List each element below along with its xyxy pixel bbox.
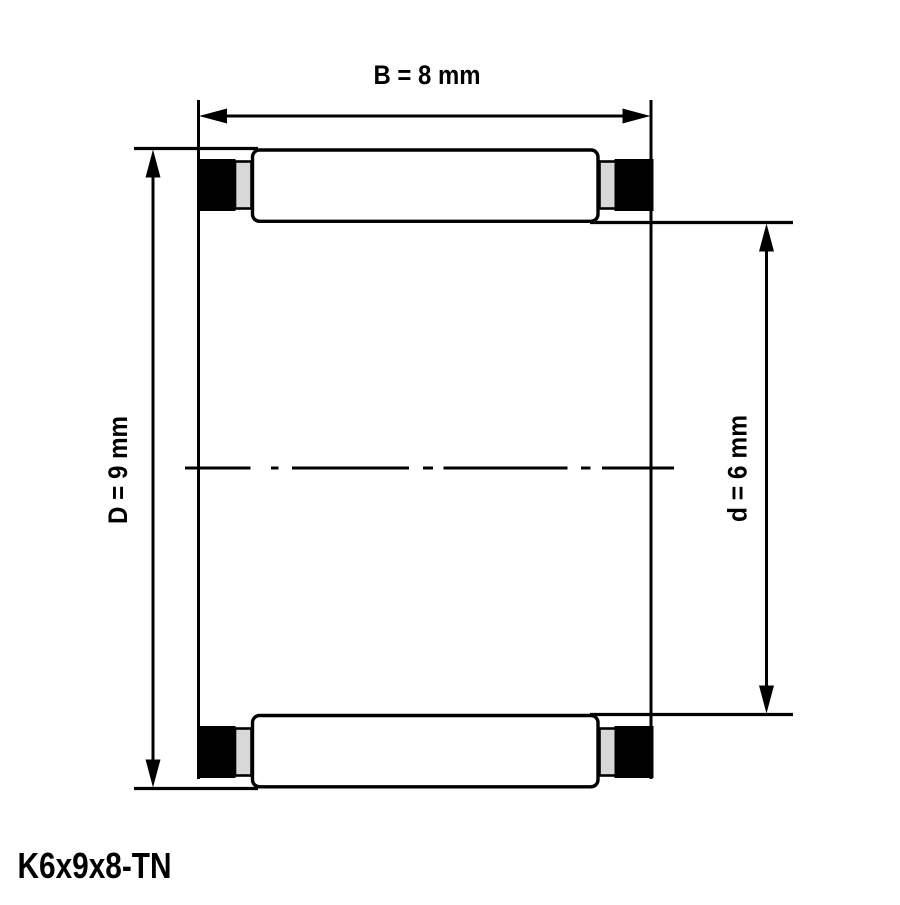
svg-text:K6x9x8-TN: K6x9x8-TN xyxy=(18,845,172,886)
svg-text:B = 8 mm: B = 8 mm xyxy=(374,60,481,90)
svg-text:D = 9 mm: D = 9 mm xyxy=(103,416,133,524)
svg-text:d = 6 mm: d = 6 mm xyxy=(723,415,753,522)
